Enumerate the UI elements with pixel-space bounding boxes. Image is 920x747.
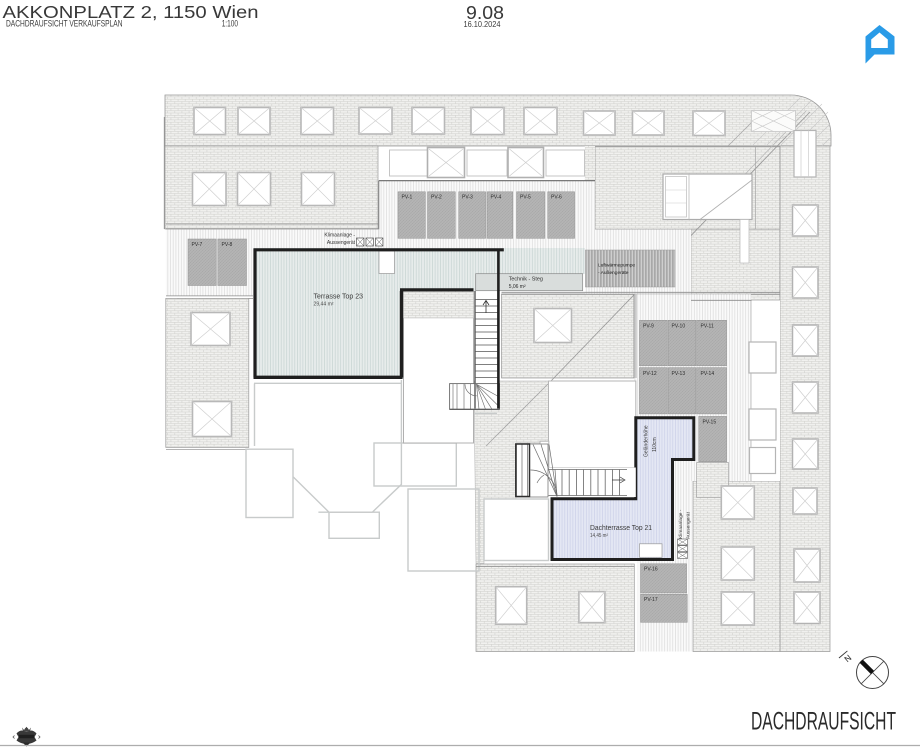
svg-text:14,45 m²: 14,45 m² [590,533,608,539]
svg-text:PV-11: PV-11 [701,323,714,329]
svg-text:Klimaanlage -: Klimaanlage - [678,509,684,539]
svg-text:110cm: 110cm [652,437,658,452]
svg-text:PV-4: PV-4 [491,195,502,201]
svg-text:16.10.2024: 16.10.2024 [464,20,502,29]
svg-text:PV-13: PV-13 [672,371,686,377]
svg-text:Luftwärmepumpe: Luftwärmepumpe [598,263,635,269]
svg-text:PV-5: PV-5 [520,195,531,201]
svg-text:Dachterrasse Top 21: Dachterrasse Top 21 [590,525,652,532]
svg-text:PV-9: PV-9 [643,323,654,329]
svg-text:Klimaanlage -: Klimaanlage - [324,233,355,239]
svg-text:Terrasse Top 23: Terrasse Top 23 [314,294,364,301]
svg-text:PV-6: PV-6 [551,195,562,201]
svg-text:PV-8: PV-8 [222,242,233,248]
svg-text:PV-10: PV-10 [672,323,686,329]
svg-text:PV-17: PV-17 [644,597,658,603]
svg-text:- Außengeräte: - Außengeräte [598,270,629,276]
svg-text:Technik - Steg: Technik - Steg [509,277,543,283]
svg-text:29,44 m²: 29,44 m² [314,302,334,308]
svg-text:PV-7: PV-7 [192,242,203,248]
svg-text:Aussengerät: Aussengerät [327,240,356,246]
svg-text:PV-2: PV-2 [431,195,442,201]
svg-text:DACHDRAUFSICHT: DACHDRAUFSICHT [751,707,896,735]
svg-text:DACHDRAUFSICHT VERKAUFSPLAN: DACHDRAUFSICHT VERKAUFSPLAN [6,19,123,29]
svg-text:5,06 m²: 5,06 m² [509,284,526,290]
svg-text:1:100: 1:100 [222,19,238,29]
svg-text:PV-14: PV-14 [701,371,715,377]
svg-text:PV-16: PV-16 [644,567,658,573]
svg-text:PV-1: PV-1 [402,195,413,201]
svg-text:PV-3: PV-3 [462,195,473,201]
svg-text:Aussengerät: Aussengerät [686,511,692,539]
svg-text:Geländerhöhe: Geländerhöhe [644,425,650,457]
svg-text:PV-12: PV-12 [643,371,657,377]
svg-text:PV-15: PV-15 [703,420,717,426]
